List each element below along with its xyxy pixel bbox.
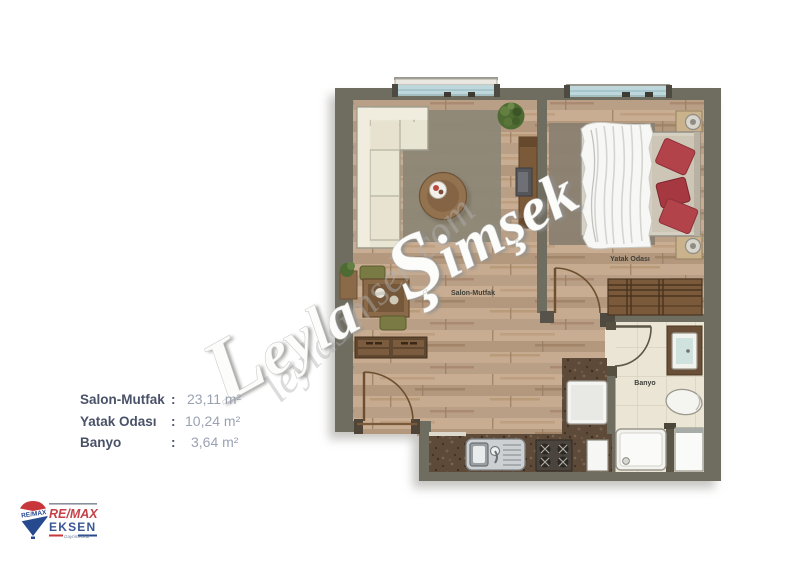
svg-text:Banyo: Banyo <box>634 380 655 387</box>
svg-text:10,24 m²: 10,24 m² <box>185 413 241 429</box>
svg-text:EKSEN: EKSEN <box>49 520 96 534</box>
svg-text:RE/MAX: RE/MAX <box>49 507 98 521</box>
svg-text:Yatak Odası: Yatak Odası <box>610 256 650 263</box>
svg-text:Yatak Odası: Yatak Odası <box>80 414 157 429</box>
svg-text::: : <box>171 435 176 450</box>
svg-text::: : <box>171 414 176 429</box>
svg-text:Salon-Mutfak: Salon-Mutfak <box>80 392 165 407</box>
svg-text:Banyo: Banyo <box>80 435 121 450</box>
svg-text:Gayrimenkul: Gayrimenkul <box>64 534 90 539</box>
svg-text::: : <box>171 392 176 407</box>
svg-text:23,11 m²: 23,11 m² <box>187 391 242 407</box>
svg-text:3,64 m²: 3,64 m² <box>191 434 239 450</box>
